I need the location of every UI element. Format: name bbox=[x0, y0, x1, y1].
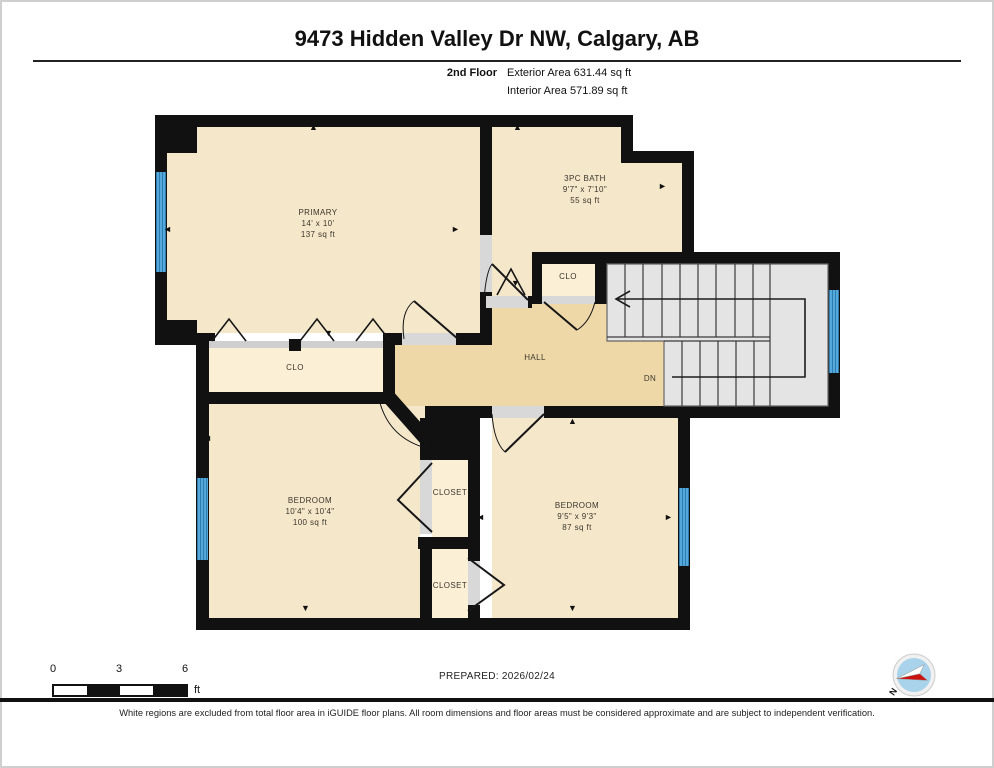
wall-clo-bottom bbox=[196, 392, 395, 404]
compass-icon: N bbox=[886, 650, 940, 704]
measure-arrow-icon: ◄ bbox=[163, 225, 172, 234]
room-area: 55 sq ft bbox=[515, 195, 655, 206]
scale-tick-0: 0 bbox=[46, 663, 60, 675]
footer-divider bbox=[0, 698, 994, 702]
hall-closet-label: CLO bbox=[538, 271, 598, 282]
hall-floor-left bbox=[395, 345, 492, 406]
prepared-date: PREPARED: 2026/02/24 bbox=[397, 671, 597, 682]
bedroom-left-label: BEDROOM 10'4" x 10'4" 100 sq ft bbox=[240, 495, 380, 528]
measure-arrow-icon: ▲ bbox=[324, 397, 333, 406]
room-name: CLOSET bbox=[414, 487, 486, 498]
door-opening-primary bbox=[480, 235, 492, 292]
wall-stairs-top bbox=[682, 252, 840, 264]
room-area: 100 sq ft bbox=[240, 517, 380, 528]
closet-upper-label: CLOSET bbox=[414, 487, 486, 498]
measure-arrow-icon: ► bbox=[451, 225, 460, 234]
measure-arrow-icon: ▲ bbox=[309, 123, 318, 132]
wall-left-step bbox=[155, 333, 215, 345]
primary-closet-label: CLO bbox=[245, 362, 345, 373]
window-stairwell bbox=[829, 290, 839, 373]
measure-arrow-icon: ► bbox=[664, 513, 673, 522]
wall-hall-bottom bbox=[425, 406, 840, 418]
floor-label: 2nd Floor bbox=[372, 67, 497, 79]
window-primary bbox=[156, 172, 166, 272]
scale-tick-6: 6 bbox=[178, 663, 192, 675]
measure-arrow-icon: ▲ bbox=[568, 417, 577, 426]
header-divider bbox=[33, 60, 961, 62]
room-area: 87 sq ft bbox=[507, 522, 647, 533]
scale-unit: ft bbox=[194, 684, 200, 696]
room-name: BEDROOM bbox=[507, 500, 647, 511]
primary-label: PRIMARY 14' x 10' 137 sq ft bbox=[248, 207, 388, 240]
closet-front-post bbox=[289, 339, 301, 351]
scale-tick-3: 3 bbox=[112, 663, 126, 675]
room-name: CLO bbox=[245, 362, 345, 373]
wall-exterior-bottom bbox=[196, 618, 690, 630]
room-name: HALL bbox=[485, 352, 585, 363]
bath-label: 3PC BATH 9'7" x 7'10" 55 sq ft bbox=[515, 173, 655, 206]
measure-arrow-icon: ◄ bbox=[203, 434, 212, 443]
room-dims: 14' x 10' bbox=[248, 218, 388, 229]
wall-closet-divider bbox=[418, 537, 480, 549]
room-dims: 9'7" x 7'10" bbox=[515, 184, 655, 195]
room-name: PRIMARY bbox=[248, 207, 388, 218]
exterior-area: Exterior Area 631.44 sq ft bbox=[507, 67, 631, 79]
room-name: BEDROOM bbox=[240, 495, 380, 506]
measure-arrow-icon: ► bbox=[658, 182, 667, 191]
interior-area: Interior Area 571.89 sq ft bbox=[507, 85, 627, 97]
room-name: 3PC BATH bbox=[515, 173, 655, 184]
stairs-down-label: DN bbox=[628, 373, 672, 384]
room-name: CLO bbox=[538, 271, 598, 282]
measure-arrow-icon: ◄ bbox=[476, 513, 485, 522]
measure-arrow-icon: ▼ bbox=[568, 604, 577, 613]
wall-primary-bath-divider bbox=[480, 115, 492, 235]
measure-arrow-icon: ▼ bbox=[324, 329, 333, 338]
wall-closet-lower-right-b bbox=[468, 605, 480, 630]
wall-corner-topleft bbox=[155, 115, 197, 153]
measure-arrow-icon: ▼ bbox=[301, 604, 310, 613]
wall-exterior-top bbox=[155, 115, 633, 127]
measure-arrow-icon: ▼ bbox=[511, 279, 520, 288]
window-bedroom-left bbox=[197, 478, 208, 560]
door-opening-hall-closet bbox=[542, 296, 595, 304]
wall-closet-lower-right-a bbox=[468, 549, 480, 561]
closet-lower-label: CLOSET bbox=[414, 580, 486, 591]
bath-floor-strip bbox=[492, 253, 532, 296]
scale-bar bbox=[52, 684, 188, 697]
door-opening-primary-hall bbox=[402, 333, 456, 345]
door-opening-bath bbox=[486, 296, 528, 308]
room-name: CLOSET bbox=[414, 580, 486, 591]
hall-label: HALL bbox=[485, 352, 585, 363]
disclaimer-text: White regions are excluded from total fl… bbox=[0, 708, 994, 718]
wall-bath-right bbox=[682, 151, 694, 264]
measure-arrow-icon: ▲ bbox=[513, 123, 522, 132]
door-opening-bedroom-right bbox=[492, 406, 544, 418]
bedroom-right-label: BEDROOM 9'5" x 9'3" 87 sq ft bbox=[507, 500, 647, 533]
room-dims: 9'5" x 9'3" bbox=[507, 511, 647, 522]
page-title: 9473 Hidden Valley Dr NW, Calgary, AB bbox=[0, 26, 994, 52]
dn-text: DN bbox=[628, 373, 672, 384]
window-bedroom-right bbox=[679, 488, 689, 566]
wall-bath-bottom bbox=[532, 252, 682, 264]
room-dims: 10'4" x 10'4" bbox=[240, 506, 380, 517]
room-area: 137 sq ft bbox=[248, 229, 388, 240]
